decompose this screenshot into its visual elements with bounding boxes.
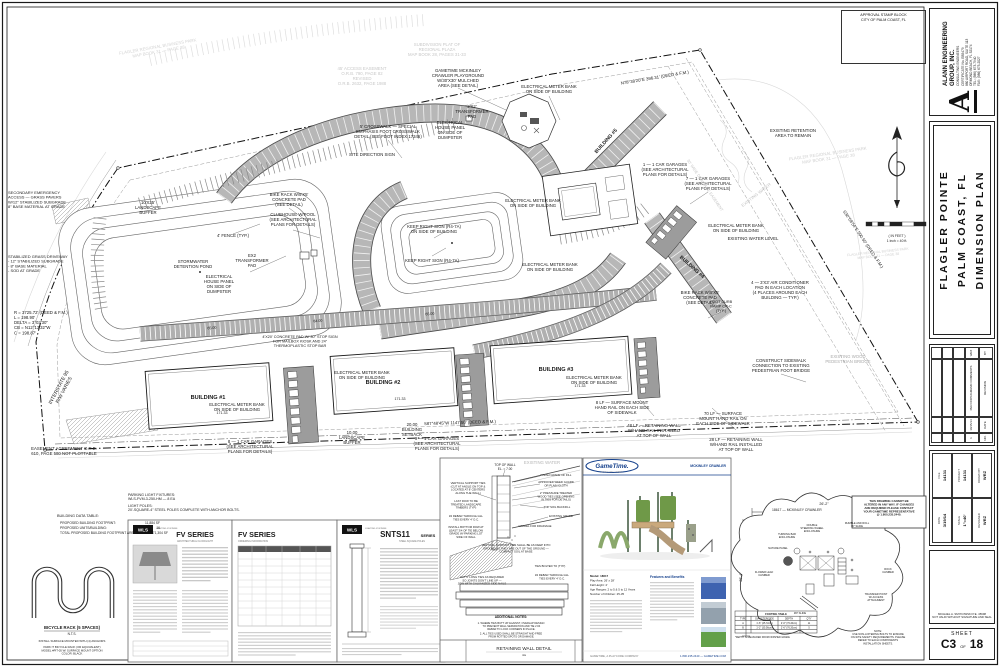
plan-label: 171.33 [395,397,406,401]
plan-label: TOP SOIL BACKFILL [544,505,571,509]
plan-label: SITE DIRECTION SIGN [349,152,395,157]
plan-label: CLUBHOUSE W/POOL(SEE ARCHITECTURALPLANS … [269,212,317,227]
scale-bar [866,222,926,226]
plan-label: EASEMENT AGREEMENT O.R.B.610, PAGE 580 N… [31,446,97,456]
plan-label: FINISH GRADE OF FILL [541,473,572,477]
corner-monument [917,421,920,424]
plan-label: 2" PRESSURE TREATEDWOOD TIES (SEE OPENIN… [538,491,575,502]
info-block: DATE3/19/14 FILE14131 SCALE1"=40' PROJEC… [929,450,995,546]
plan-label: GRAVEL FOR DRAINAGE [518,524,551,528]
corner-monument [117,167,120,170]
plan-label: 84.00 [313,319,322,324]
project-name: FLAGLER POINTE [938,126,950,334]
plan-label: BUILDING DATA TABLE: [57,514,99,518]
plan-label: ARCHITECTURAL FLOODLIGHT [177,540,213,543]
project-title-block: FLAGLER POINTE PALM COAST, FL DIMENSION … [929,121,995,339]
plan-label: EXISTING WATER LEVEL [728,236,779,241]
plan-label: SERIES [421,533,436,538]
plan-label: 1 — 1 CAR GARAGES(SEE ARCHITECTURALPLANS… [641,162,689,177]
plan-label: TIES BOLTED TO (TYP) [535,564,566,568]
photo-thumbnails [701,577,726,647]
plan-label: VERTICAL SUPPORT TIES(CUT AT ANGLE ON TO… [451,481,486,495]
approval-stamp-block: APPROVAL STAMP BLOCK CITY OF PALM COAST,… [841,10,926,64]
plan-label: ORDERING INFORMATION [238,540,268,543]
plan-label: #4 REBAR THROUGH ALLTIES EVERY 4' O.C. [449,514,483,521]
site-plan-svg: STORMWATERDETENTION POND4' FENCE (TYP.)E… [0,0,1000,667]
info-designed: DESIGNEDWRZ [972,498,992,543]
plan-label: Model: 18617 [590,574,609,578]
plan-label: ELECTRICAL METER BANKON SIDE OF BUILDING [334,370,390,380]
pe-stamp-block: MICHAEL A. SMYKOWSKI P.E. 45698 NOT VALI… [929,550,995,624]
garage-row [283,366,318,444]
plan-label: Features and Benefits [650,575,685,579]
plan-label: ZIP SLIDE [794,611,806,615]
revision-no: 1 [965,433,979,443]
plan-label: INSTALL SURFACE MOUNTED WITH (4) ANCHORS [39,639,106,643]
plan-label: 4' FENCE (TYP.) [217,233,250,238]
plan-label: TYPE [740,617,747,620]
revision-cell-empty [931,433,942,443]
plan-label: TOTAL PROPOSED BUILDING FOOTPRINT AREA: [60,531,137,535]
plan-label: GAMETIME, A PLAYCORE COMPANY [590,654,639,658]
plan-label: DIAMETER/SIDE [755,617,774,620]
plan-label: 2'-6" (76.20cm) [781,622,797,625]
plan-label: TURNING BARENCLOSURE [778,532,796,539]
plan-label: STORMWATERDETENTION POND [174,259,212,269]
revision-rotated: 1 10/15/14 PER COPC/GMHMC COMMENTS WRZ N… [931,347,993,443]
info-scale: SCALE1"=40' [952,498,972,543]
plan-label: Fall Height: 4' [590,583,608,587]
pe-note: NOT VALID WITHOUT SIGNATURE AND SEAL [930,616,994,620]
plan-label: QTY [807,617,812,620]
approval-line2: CITY OF PALM COAST, FL [842,18,925,23]
plan-label: ELECTRICAL METER BANKON SIDE OF BUILDING [505,198,561,208]
sheet-total: 18 [970,637,983,651]
revision-header: NO. [979,433,993,443]
garage-row [634,337,660,398]
drawing-title: DIMENSION PLAN [974,126,986,334]
info-drawn: DRAWN BYWRZ [972,453,992,498]
plan-label: ELECTRICALHOUSE PANELON SIDE OFDUMPSTER [435,120,466,140]
courtyard-pond [379,190,526,296]
info-file: FILE14131 [932,453,952,498]
plan-label: GameTime. [595,463,629,470]
sheet-number: C3 [941,637,956,651]
plan-label: 1'-6" (45.72cm) [756,622,772,625]
plan-label: NATURE PANEL [768,546,788,550]
plan-label: WLS [138,528,148,533]
plan-label: BIKE RACK W/5'X5'CONCRETE PAD(SEE DETAIL… [270,192,309,207]
plan-label: 65.00 [425,312,434,317]
info-date: DATE3/19/14 [932,498,952,543]
plan-label: STEEL SQUARE POLES [399,540,425,543]
catalog-panel-snts11 [337,520,445,662]
plan-label: A PLAYCORE COMPANY [601,471,624,474]
revision-block: 1 10/15/14 PER COPC/GMHMC COMMENTS WRZ N… [929,344,995,446]
drawing-sheet: STORMWATERDETENTION POND4' FENCE (TYP.)E… [0,0,1000,667]
plan-label: 1 inch = 40 ft. [887,239,908,243]
plan-label: RETAINING WALL DETAIL [496,646,552,651]
plan-label: ADDITIONAL NOTES: [495,615,528,619]
plan-label: SNTS11 [380,530,410,539]
company-logo: A [947,90,977,113]
plan-label: BUILDING #1 [191,395,226,401]
info-rotated: DATE3/19/14 FILE14131 SCALE1"=40' PROJEC… [932,453,992,543]
corner-monument [699,49,702,52]
plan-label: Play Area: 26' x 28' [590,579,615,583]
revision-by: WRZ [965,347,979,359]
plan-label: EXISTING WOODPEDESTRIAN BRIDGE [825,354,870,364]
company-rotated: A ALANN ENGINEERING GROUP, INC. CONSULTI… [933,11,991,113]
plan-label: 28'-4" [739,572,743,582]
plan-label: SECONDARY EMERGENCYACCESS — GRASS PAVERS… [8,190,66,209]
plan-label: 2'-6" (76.20cm) [781,626,797,629]
plan-label: PROPOSED UNITS/BUILDING: [60,526,107,530]
revision-date: 10/15/14 [965,417,979,433]
company-title-block: A ALANN ENGINEERING GROUP, INC. CONSULTI… [929,8,995,116]
plan-label: ( IN FEET ) [888,234,905,238]
pool [558,183,600,220]
plan-label: LIGHTING SYSTEMS [156,528,178,530]
gametime-panel [583,458,731,662]
dumpster-pad [311,250,317,256]
plan-label: ELECTRICAL METER BANKON SIDE OF BUILDING [522,262,578,272]
plan-label: EXISTING RETENTIONAREA TO REMAIN [770,128,816,138]
plan-label: GAMETIME MCKINLEYCRAWLER PLAYGROUNDW/30'… [432,68,484,88]
plan-label: BUILDING #2 [366,380,401,386]
plan-label: 1'-2" (35.56cm) [756,626,772,629]
plan-label: 18617 — MCKINLEY CRAWLER [772,508,822,512]
transformer-pad [300,252,309,259]
plan-label: 11,884 SF [145,521,160,525]
project-rotated: FLAGLER POINTE PALM COAST, FL DIMENSION … [933,125,991,335]
plan-label: BUILDING #3 [539,367,574,373]
plan-label: 1. WHERE TIES BUTT UP AGAINST, OVERLAP D… [478,621,545,631]
company-name: ALANN ENGINEERING [943,21,950,86]
plan-label: *DEPTH IS MEASURED FROM FINISHED GRADE [735,636,790,639]
info-project: PROJECT14131 [952,453,972,498]
plan-label: EXISTING GRADE [549,514,573,518]
plan-label: 8 — 1 CAR GARAGES(SEE ARCHITECTURALPLANS… [226,439,274,454]
plan-label: ELECTRICAL METER BANKON SIDE OF BUILDING [708,223,764,233]
plan-label: DEPTH [785,617,793,620]
plan-label: 9 — 1 CAR GARAGES(SEE ARCHITECTURALPLANS… [413,436,461,451]
plan-label: 1.800.235.2440 — GAMETIME.COM [680,654,727,658]
project-location: PALM COAST, FL [956,126,968,334]
plan-label: PARKING LIGHT FIXTURES:WLS-FVM-3-250-HM … [128,493,176,501]
plan-label: MCKINLEY CRAWLER [690,464,726,468]
plan-label: Number of Children: 25-35 [590,592,624,596]
plan-label: 171.33 [575,384,586,388]
sheet-number-block: SHEET C3 OF 18 [929,628,995,660]
plan-label: N.T.S. [68,632,77,636]
plan-label: 70 LF — SURFACEMOUNT HAND RAIL ONEACH SI… [696,411,750,426]
plan-label: CUT 6' LONG TIES AS REQUIREDSO JOINTS DO… [458,575,507,586]
playground-area [502,94,556,148]
plan-label: KEEP RIGHT SIGN (R4-7A)ON SIDE OF BUILDI… [407,224,461,234]
plan-label: 71,304 SF [153,531,168,535]
garage-row [456,353,489,427]
plan-label: nts [522,653,527,657]
plan-label: ELECTRICALHOUSE PANELON SIDE OFDUMPSTER [204,274,235,294]
plan-label: WLS [347,528,357,533]
plan-label: ELECTRICAL METER BANKON SIDE OF BUILDING [521,84,577,94]
plan-label: FOOTING TABLE [765,612,787,616]
plan-label: Age Ranges: 2 to 5 & 5 to 12 Years [590,588,636,592]
plan-label: FV SERIES [176,530,214,539]
plan-label: #4 REBAR THROUGH ALLTIES EVERY 4' O.C. [535,573,569,580]
plan-label: 171.33 [217,411,228,415]
plan-label: FV SERIES [238,530,276,539]
revision-desc: PER COPC/GMHMC COMMENTS [965,359,979,417]
plan-label: 26'-2" [819,502,829,506]
plan-label: CONSTRUCT SIDEWALKCONNECTION TO EXISTING… [752,358,810,373]
plan-label: KEEP RIGHT SIGN (R4-7A) [405,258,459,263]
plan-label: 65.00 [207,326,216,331]
plan-label: PROPOSED BUILDING FOOTPRINT: [60,521,116,525]
plan-label: BICYCLE RACK (5 SPACES) [44,625,101,630]
plan-label: 2. ALL TIES USED SHALL BE STRAIGHT AND F… [480,632,542,639]
plan-label: EXISTING WATER [524,460,560,465]
plan-label: 5' CROSSWALK — SPECIALEMPHASIS FOOT CROS… [354,124,422,139]
